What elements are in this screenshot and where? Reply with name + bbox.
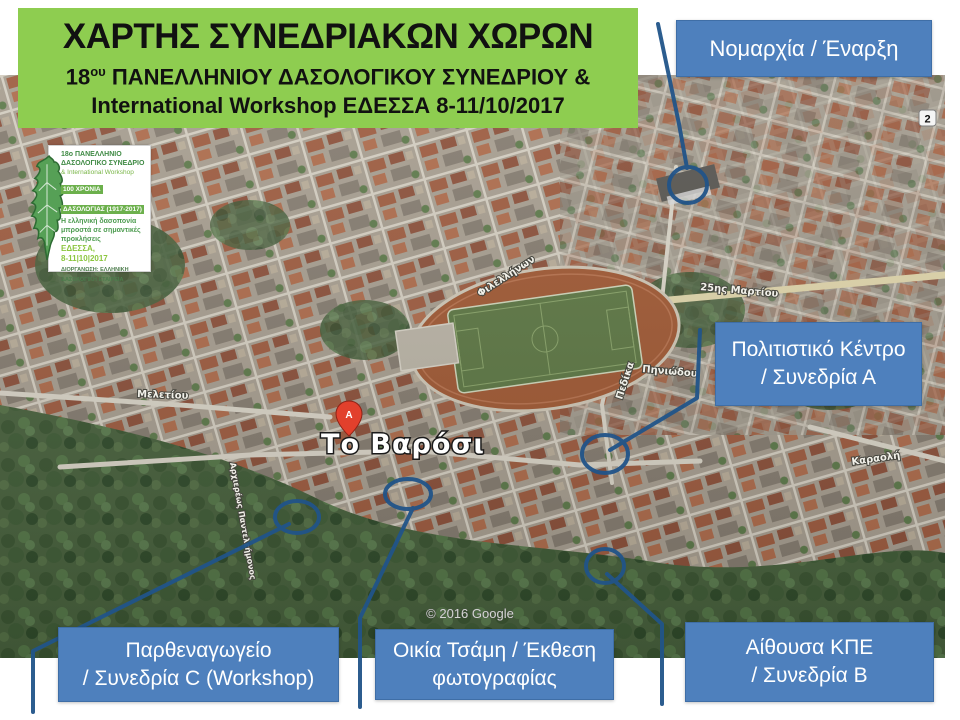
callout-politistiko-kentro: Πολιτιστικό Κέντρο / Συνεδρία Α	[715, 322, 922, 406]
logo-motto2: μπροστά σε σημαντικές	[61, 226, 147, 235]
subtitle-superscript: ου	[90, 64, 106, 79]
logo-line3: & International Workshop	[61, 169, 147, 177]
logo-motto1: Η ελληνική δασοπονία	[61, 217, 147, 226]
callout-text: / Συνεδρία Β	[751, 662, 867, 690]
slide-subtitle-line2: International Workshop ΕΔΕΣΣΑ 8-11/10/20…	[18, 91, 638, 120]
map-attribution: © 2016 Google	[426, 606, 514, 621]
place-label-varosi: Το Βαρόσι	[321, 429, 485, 460]
logo-text-block: 18ο ΠΑΝΕΛΛΗΝΙΟ ΔΑΣΟΛΟΓΙΚΟ ΣΥΝΕΔΡΙΟ & Int…	[61, 151, 147, 284]
slide-title: ΧΑΡΤΗΣ ΣΥΝΕΔΡΙΑΚΩΝ ΧΩΡΩΝ	[18, 8, 638, 57]
callout-text: Νομαρχία / Έναρξη	[709, 34, 898, 63]
pin-letter: A	[345, 410, 352, 421]
logo-line2: ΔΑΣΟΛΟΓΙΚΟ ΣΥΝΕΔΡΙΟ	[61, 160, 147, 169]
logo-motto3: προκλήσεις	[61, 235, 147, 244]
callout-aithousa-kpe: Αίθουσα ΚΠΕ / Συνεδρία Β	[685, 622, 934, 702]
conference-map-slide: Φιλελλήνων 25ης Μαρτίου Πηνιώδου Πεδίκα …	[0, 0, 960, 720]
badge-number: 2	[924, 114, 930, 126]
callout-text: Αίθουσα ΚΠΕ	[746, 634, 874, 662]
callout-text: Παρθεναγωγείο	[125, 637, 271, 665]
street-label: Μελετίου	[137, 388, 189, 402]
title-banner: ΧΑΡΤΗΣ ΣΥΝΕΔΡΙΑΚΩΝ ΧΩΡΩΝ 18ου ΠΑΝΕΛΛΗΝΙΟ…	[18, 8, 638, 128]
map-corner-badge: 2	[919, 110, 936, 126]
logo-dates: 8-11|10|2017	[61, 254, 147, 264]
callout-oikia-tsami: Οικία Τσάμη / Έκθεση φωτογραφίας	[375, 629, 614, 700]
callout-parthenagogeio: Παρθεναγωγείο / Συνεδρία C (Workshop)	[58, 627, 339, 702]
callout-text: / Συνεδρία C (Workshop)	[83, 665, 314, 693]
subtitle-rest: ΠΑΝΕΛΛΗΝΙΟΥ ΔΑΣΟΛΟΓΙΚΟΥ ΣΥΝΕΔΡΙΟΥ &	[106, 64, 590, 89]
subtitle-prefix: 18	[66, 64, 90, 89]
callout-text: Οικία Τσάμη / Έκθεση	[393, 637, 596, 665]
logo-organizer2: ΔΑΣΟΛΟΓΙΚΗ ΕΤΑΙΡΕΙΑ	[61, 277, 147, 284]
logo-organizer1: ΔΙΟΡΓΑΝΩΣΗ: ΕΛΛΗΝΙΚΗ	[61, 267, 147, 274]
logo-banner1: 100 ΧΡΟΝΙΑ	[61, 185, 103, 194]
callout-nomarchia: Νομαρχία / Έναρξη	[676, 20, 932, 77]
callout-text: / Συνεδρία Α	[761, 364, 876, 392]
logo-banner2: ΔΑΣΟΛΟΓΙΑΣ (1917-2017)	[61, 205, 144, 214]
logo-line1: 18ο ΠΑΝΕΛΛΗΝΙΟ	[61, 151, 147, 160]
callout-text: φωτογραφίας	[432, 665, 557, 693]
callout-text: Πολιτιστικό Κέντρο	[731, 336, 905, 364]
logo-place: ΕΔΕΣΣΑ,	[61, 244, 147, 254]
conference-logo: 18ο ΠΑΝΕΛΛΗΝΙΟ ΔΑΣΟΛΟΓΙΚΟ ΣΥΝΕΔΡΙΟ & Int…	[48, 145, 151, 272]
slide-subtitle-line1: 18ου ΠΑΝΕΛΛΗΝΙΟΥ ΔΑΣΟΛΟΓΙΚΟΥ ΣΥΝΕΔΡΙΟΥ &	[18, 57, 638, 91]
